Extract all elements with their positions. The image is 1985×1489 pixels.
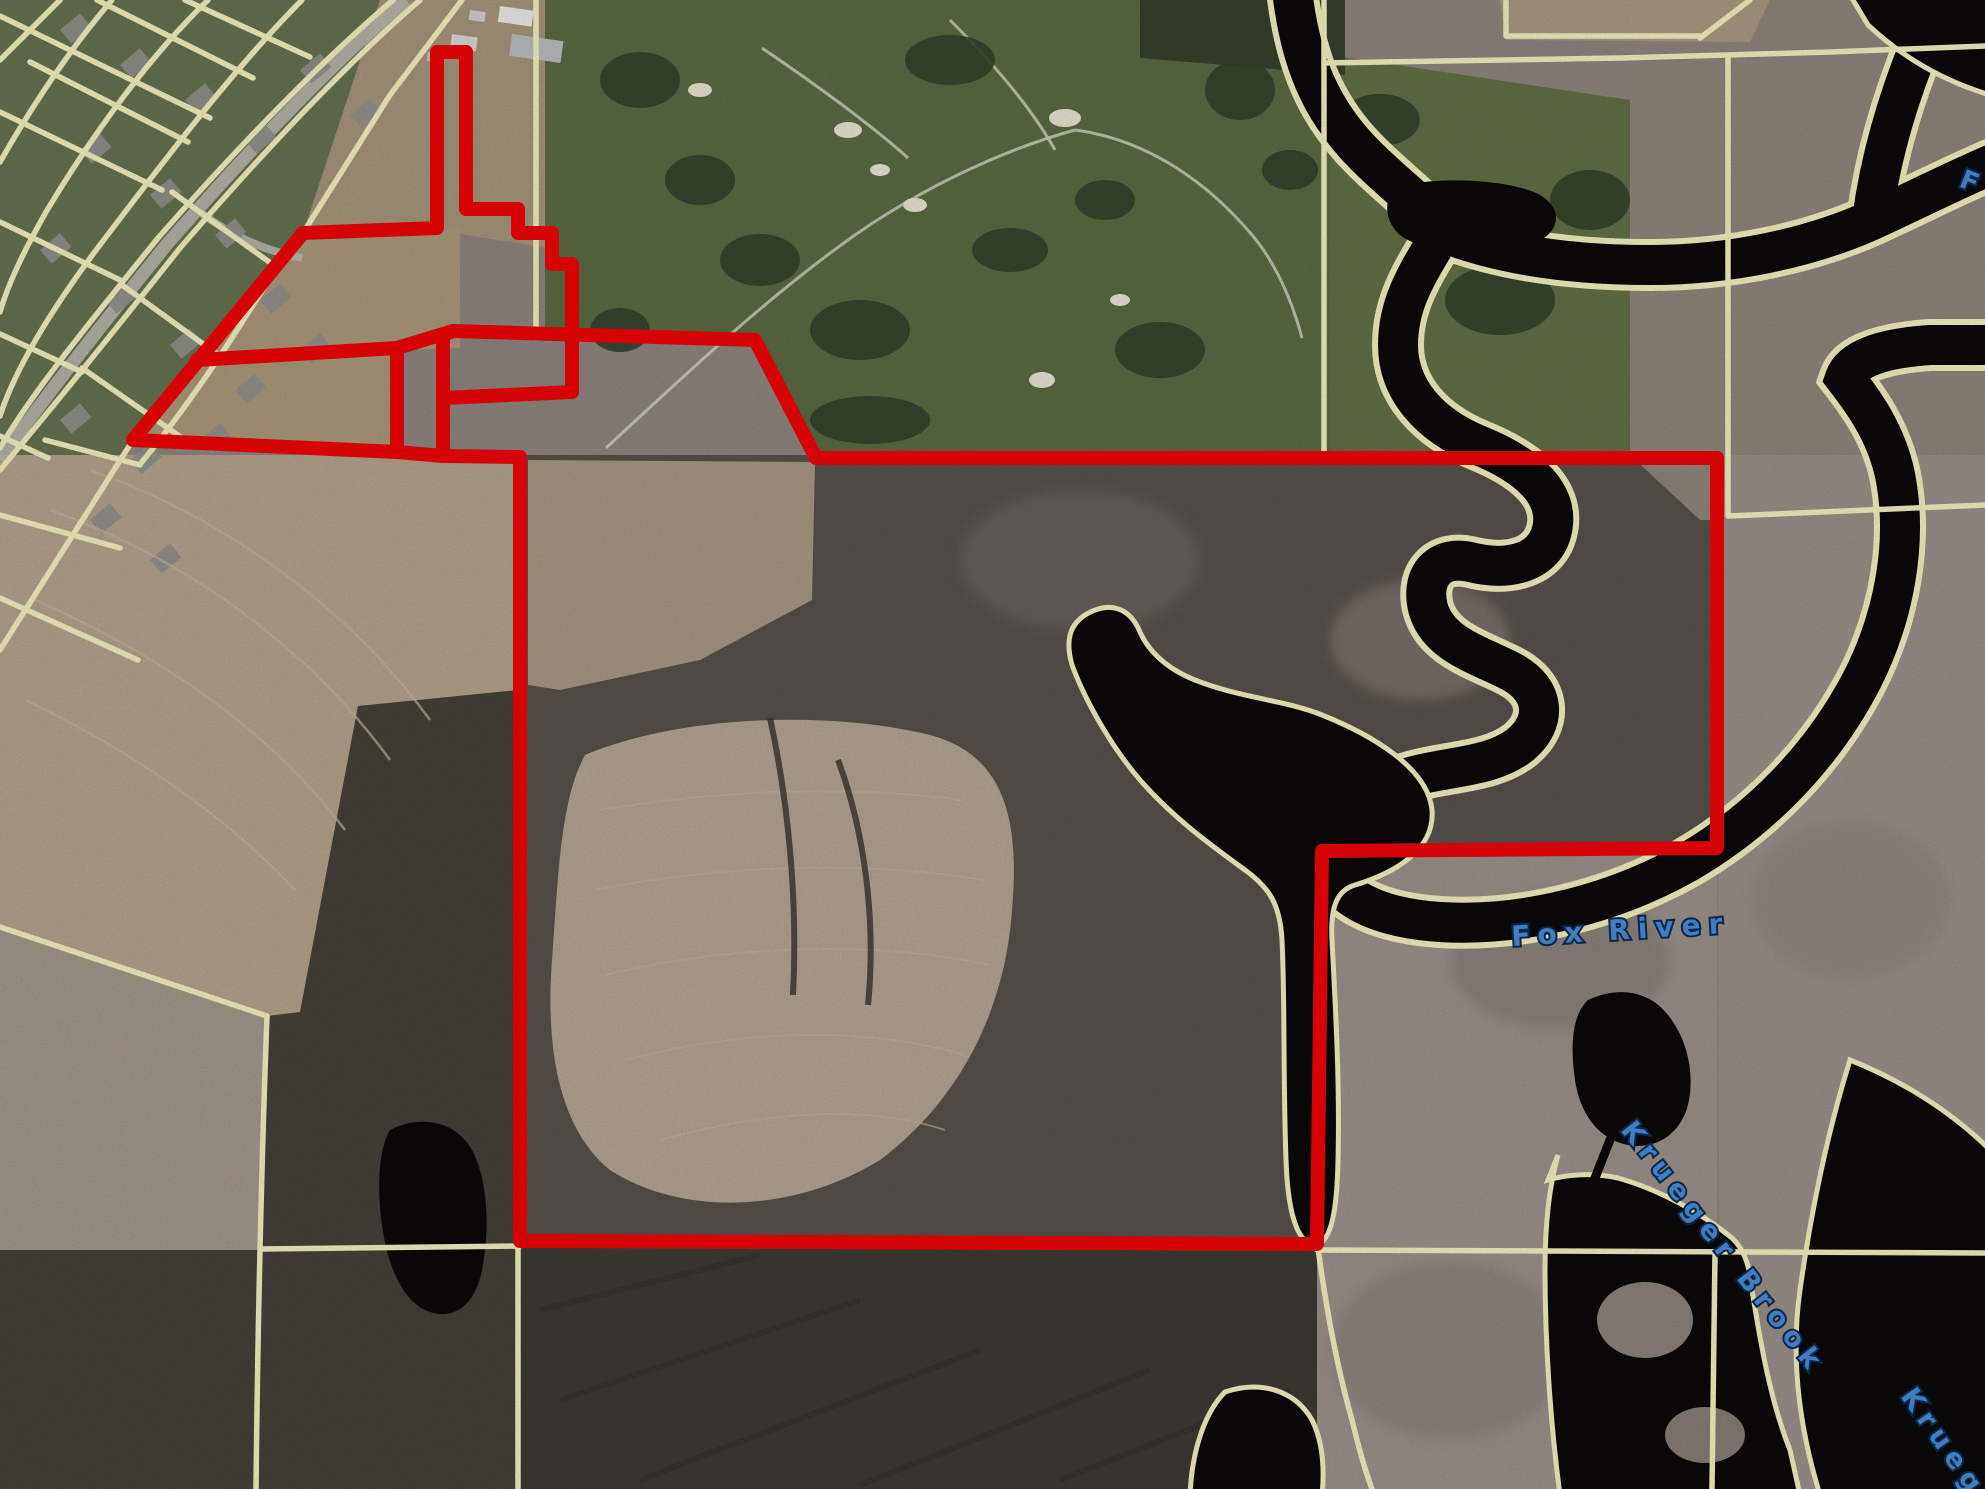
map-viewport[interactable]: Fox River Krueger Brook Krueger F o <box>0 0 1985 1489</box>
image-noise-overlay <box>0 0 1985 1489</box>
map-canvas[interactable]: Fox River Krueger Brook Krueger F o <box>0 0 1985 1489</box>
